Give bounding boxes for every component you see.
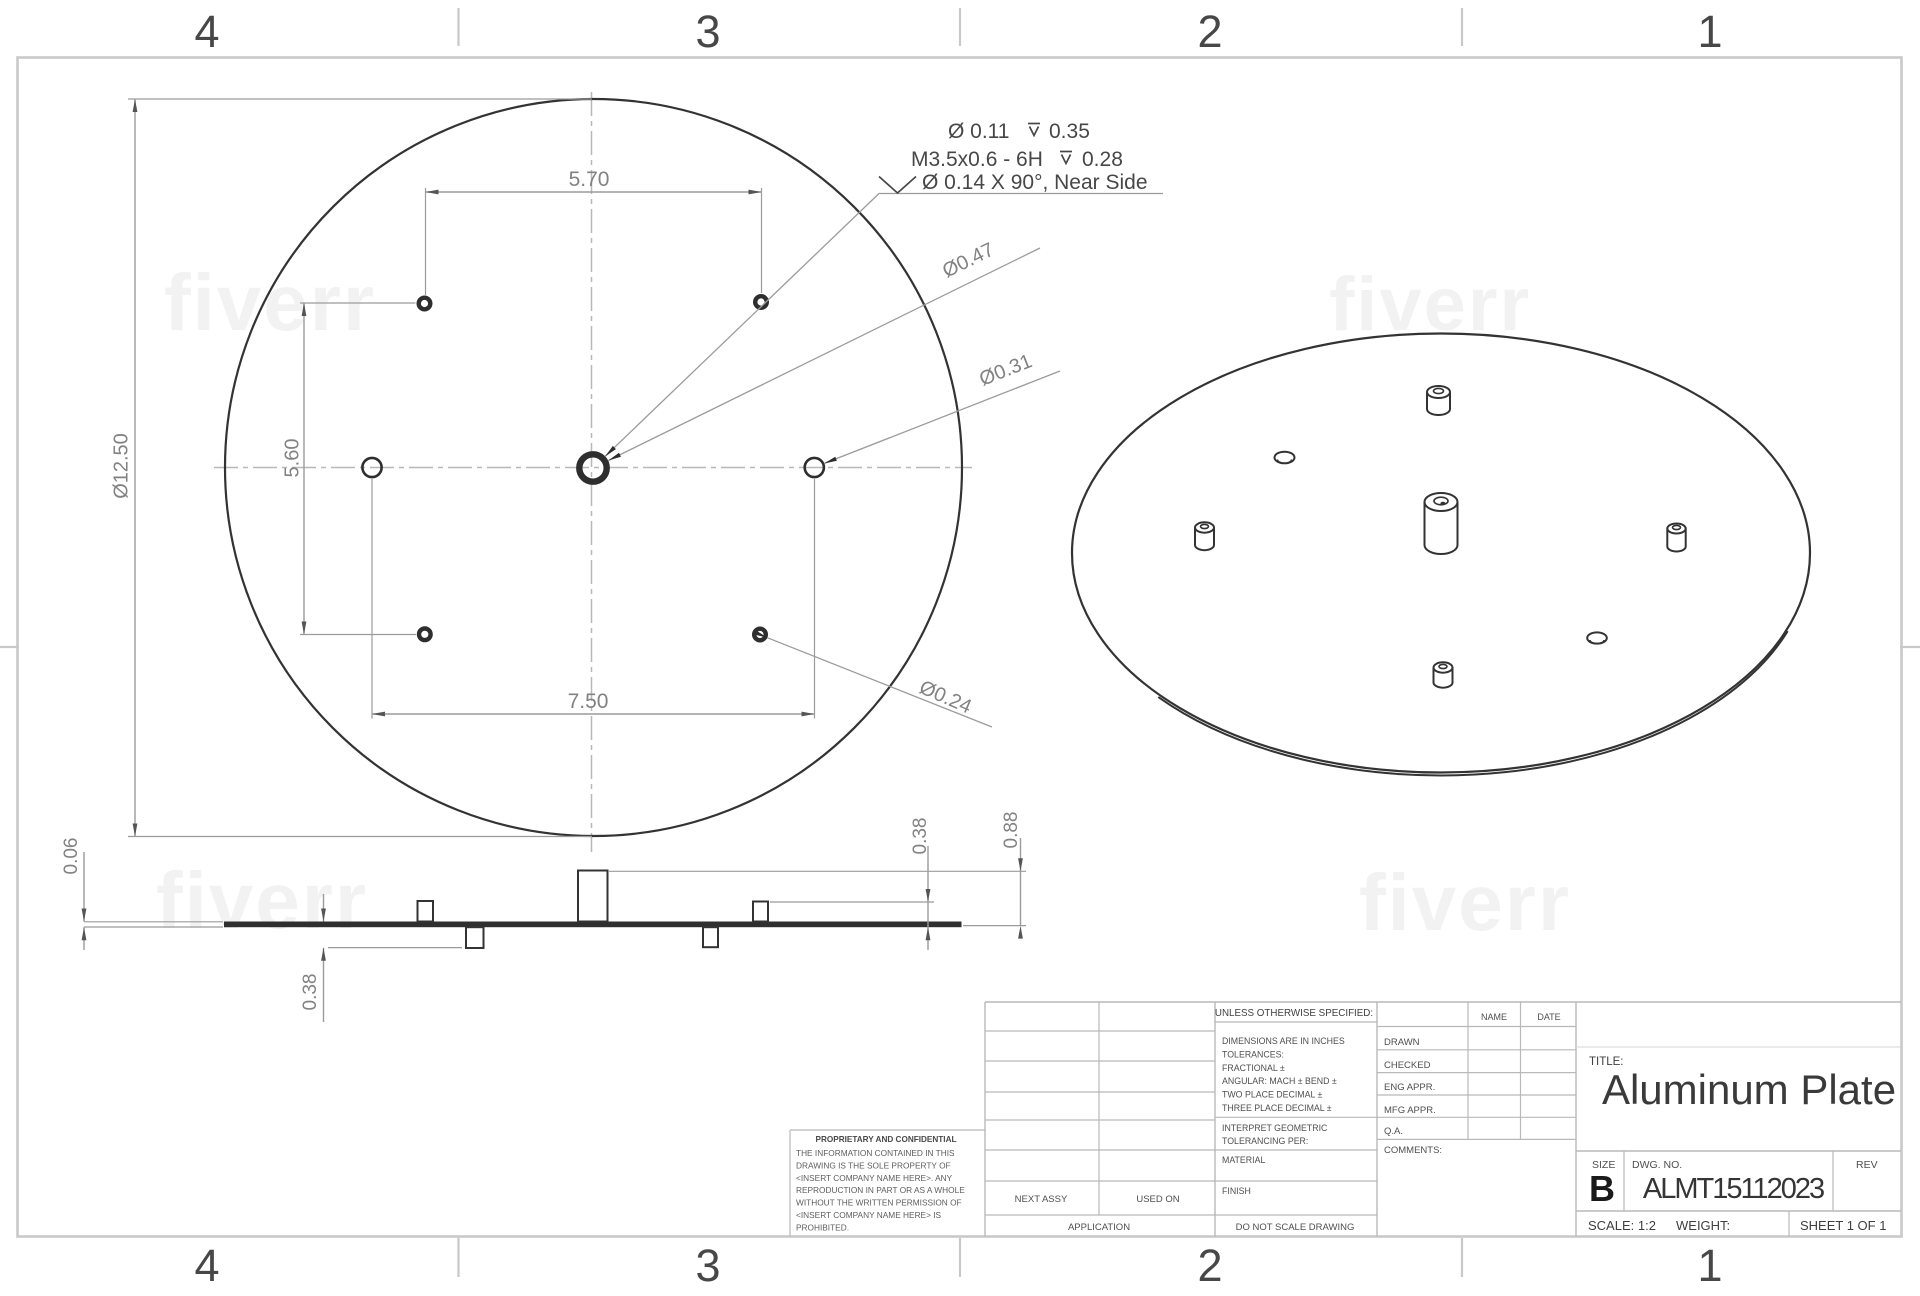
svg-text:REV: REV	[1856, 1159, 1878, 1171]
svg-text:fiverr: fiverr	[156, 856, 368, 945]
svg-text:5.60: 5.60	[282, 439, 304, 478]
svg-text:B: B	[1589, 1168, 1615, 1209]
svg-text:4: 4	[194, 1240, 219, 1291]
svg-text:4: 4	[194, 6, 219, 57]
svg-text:ENG APPR.: ENG APPR.	[1384, 1082, 1435, 1093]
svg-text:Ø0.24: Ø0.24	[916, 677, 975, 719]
svg-text:WEIGHT:: WEIGHT:	[1676, 1218, 1730, 1233]
svg-text:0.38: 0.38	[910, 818, 931, 855]
svg-text:SCALE: 1:2: SCALE: 1:2	[1588, 1218, 1656, 1233]
svg-text:WITHOUT THE WRITTEN PERMISSION: WITHOUT THE WRITTEN PERMISSION OF	[796, 1198, 962, 1208]
svg-text:INTERPRET GEOMETRIC: INTERPRET GEOMETRIC	[1222, 1123, 1328, 1133]
svg-text:2: 2	[1197, 6, 1222, 57]
svg-text:0.28: 0.28	[1082, 148, 1123, 171]
svg-text:5.70: 5.70	[569, 168, 610, 191]
svg-text:THE INFORMATION CONTAINED IN T: THE INFORMATION CONTAINED IN THIS	[796, 1148, 955, 1158]
svg-text:1: 1	[1697, 6, 1722, 57]
svg-text:USED ON: USED ON	[1136, 1194, 1179, 1205]
svg-text:ANGULAR: MACH ± BEND ±: ANGULAR: MACH ± BEND ±	[1222, 1076, 1337, 1086]
svg-text:REPRODUCTION IN PART OR AS A W: REPRODUCTION IN PART OR AS A WHOLE	[796, 1185, 965, 1195]
svg-text:Ø 0.14 X 90°, Near Side: Ø 0.14 X 90°, Near Side	[922, 171, 1148, 194]
svg-text:3: 3	[695, 1240, 720, 1291]
svg-text:PROPRIETARY AND CONFIDENTIAL: PROPRIETARY AND CONFIDENTIAL	[815, 1135, 956, 1144]
svg-text:DATE: DATE	[1537, 1012, 1560, 1022]
svg-text:Aluminum Plate: Aluminum Plate	[1602, 1066, 1896, 1113]
svg-text:DO NOT SCALE DRAWING: DO NOT SCALE DRAWING	[1236, 1222, 1355, 1233]
svg-text:M3.5x0.6 - 6H: M3.5x0.6 - 6H	[911, 148, 1043, 171]
svg-text:CHECKED: CHECKED	[1384, 1060, 1431, 1071]
svg-text:0.38: 0.38	[300, 974, 321, 1011]
svg-text:DWG. NO.: DWG. NO.	[1632, 1159, 1682, 1171]
svg-text:DIMENSIONS ARE IN INCHES: DIMENSIONS ARE IN INCHES	[1222, 1036, 1345, 1046]
svg-text:7.50: 7.50	[568, 690, 609, 713]
svg-text:MFG APPR.: MFG APPR.	[1384, 1105, 1436, 1116]
svg-text:Ø 0.11: Ø 0.11	[948, 120, 1009, 143]
svg-text:fiverr: fiverr	[1359, 858, 1571, 947]
svg-text:SHEET 1 OF 1: SHEET 1 OF 1	[1800, 1218, 1886, 1233]
svg-text:TOLERANCES:: TOLERANCES:	[1222, 1049, 1284, 1059]
svg-text:2: 2	[1197, 1240, 1222, 1291]
svg-text:THREE PLACE DECIMAL ±: THREE PLACE DECIMAL ±	[1222, 1103, 1332, 1113]
svg-text:COMMENTS:: COMMENTS:	[1384, 1145, 1442, 1156]
svg-text:<INSERT COMPANY NAME HERE> IS: <INSERT COMPANY NAME HERE> IS	[796, 1210, 942, 1220]
svg-text:NEXT ASSY: NEXT ASSY	[1015, 1194, 1068, 1205]
svg-text:1: 1	[1697, 1240, 1722, 1291]
svg-text:NAME: NAME	[1481, 1012, 1507, 1022]
svg-text:Ø0.47: Ø0.47	[939, 239, 998, 283]
svg-text:FINISH: FINISH	[1222, 1186, 1251, 1196]
svg-text:Q.A.: Q.A.	[1384, 1126, 1403, 1137]
svg-text:PROHIBITED.: PROHIBITED.	[796, 1222, 849, 1232]
svg-text:TWO PLACE DECIMAL ±: TWO PLACE DECIMAL ±	[1222, 1090, 1322, 1100]
svg-text:0.88: 0.88	[1001, 812, 1022, 849]
svg-text:APPLICATION: APPLICATION	[1068, 1222, 1130, 1233]
svg-text:MATERIAL: MATERIAL	[1222, 1155, 1265, 1165]
svg-text:0.06: 0.06	[61, 838, 82, 875]
svg-text:DRAWN: DRAWN	[1384, 1037, 1420, 1048]
svg-text:0.35: 0.35	[1049, 120, 1090, 143]
svg-text:<INSERT COMPANY NAME HERE>. AN: <INSERT COMPANY NAME HERE>. ANY	[796, 1173, 953, 1183]
svg-text:DRAWING IS THE SOLE PROPERTY O: DRAWING IS THE SOLE PROPERTY OF	[796, 1160, 951, 1170]
svg-text:UNLESS OTHERWISE SPECIFIED:: UNLESS OTHERWISE SPECIFIED:	[1215, 1008, 1373, 1019]
svg-text:TOLERANCING PER:: TOLERANCING PER:	[1222, 1136, 1308, 1146]
svg-text:3: 3	[695, 6, 720, 57]
svg-text:FRACTIONAL ±: FRACTIONAL ±	[1222, 1063, 1285, 1073]
svg-text:ALMT15112023: ALMT15112023	[1643, 1173, 1824, 1205]
svg-text:Ø12.50: Ø12.50	[111, 433, 133, 499]
